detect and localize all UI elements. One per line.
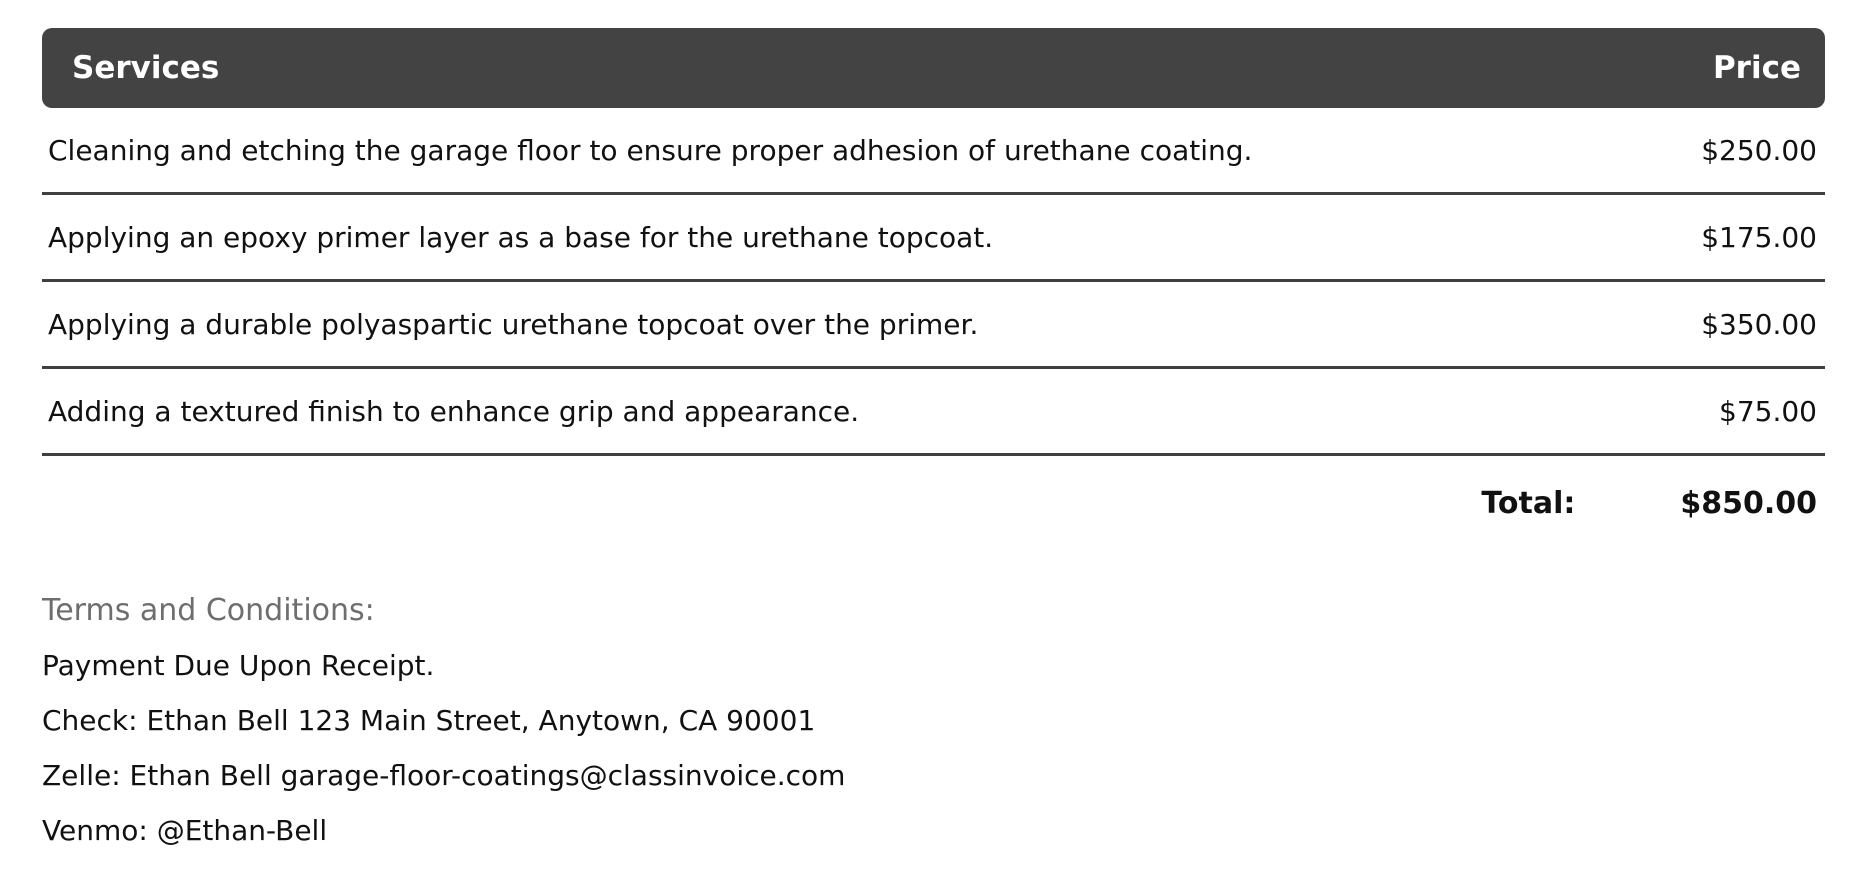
terms-line-check: Check: Ethan Bell 123 Main Street, Anyto… xyxy=(42,693,1825,748)
total-value: $850.00 xyxy=(1680,486,1817,521)
table-row: Applying an epoxy primer layer as a base… xyxy=(42,195,1825,282)
service-description: Adding a textured finish to enhance grip… xyxy=(48,395,1719,428)
service-description: Applying an epoxy primer layer as a base… xyxy=(48,221,1701,254)
services-column-header: Services xyxy=(72,50,219,86)
table-row: Applying a durable polyaspartic urethane… xyxy=(42,282,1825,369)
table-row: Adding a textured finish to enhance grip… xyxy=(42,369,1825,456)
service-description: Applying a durable polyaspartic urethane… xyxy=(48,308,1701,341)
service-price: $250.00 xyxy=(1701,134,1817,167)
terms-line-zelle: Zelle: Ethan Bell garage-floor-coatings@… xyxy=(42,748,1825,803)
total-label: Total: xyxy=(1481,486,1575,521)
services-table-header: Services Price xyxy=(42,28,1825,108)
services-table: Services Price Cleaning and etching the … xyxy=(42,28,1825,551)
terms-heading: Terms and Conditions: xyxy=(42,583,1825,638)
invoice-document: Services Price Cleaning and etching the … xyxy=(0,0,1868,858)
service-price: $350.00 xyxy=(1701,308,1817,341)
service-description: Cleaning and etching the garage floor to… xyxy=(48,134,1701,167)
terms-line-venmo: Venmo: @Ethan-Bell xyxy=(42,803,1825,858)
table-row: Cleaning and etching the garage floor to… xyxy=(42,108,1825,195)
total-row: Total: $850.00 xyxy=(42,456,1825,551)
price-column-header: Price xyxy=(1713,50,1801,86)
service-price: $175.00 xyxy=(1701,221,1817,254)
terms-line-payment: Payment Due Upon Receipt. xyxy=(42,638,1825,693)
service-price: $75.00 xyxy=(1719,395,1817,428)
terms-and-conditions-section: Terms and Conditions: Payment Due Upon R… xyxy=(42,583,1825,858)
